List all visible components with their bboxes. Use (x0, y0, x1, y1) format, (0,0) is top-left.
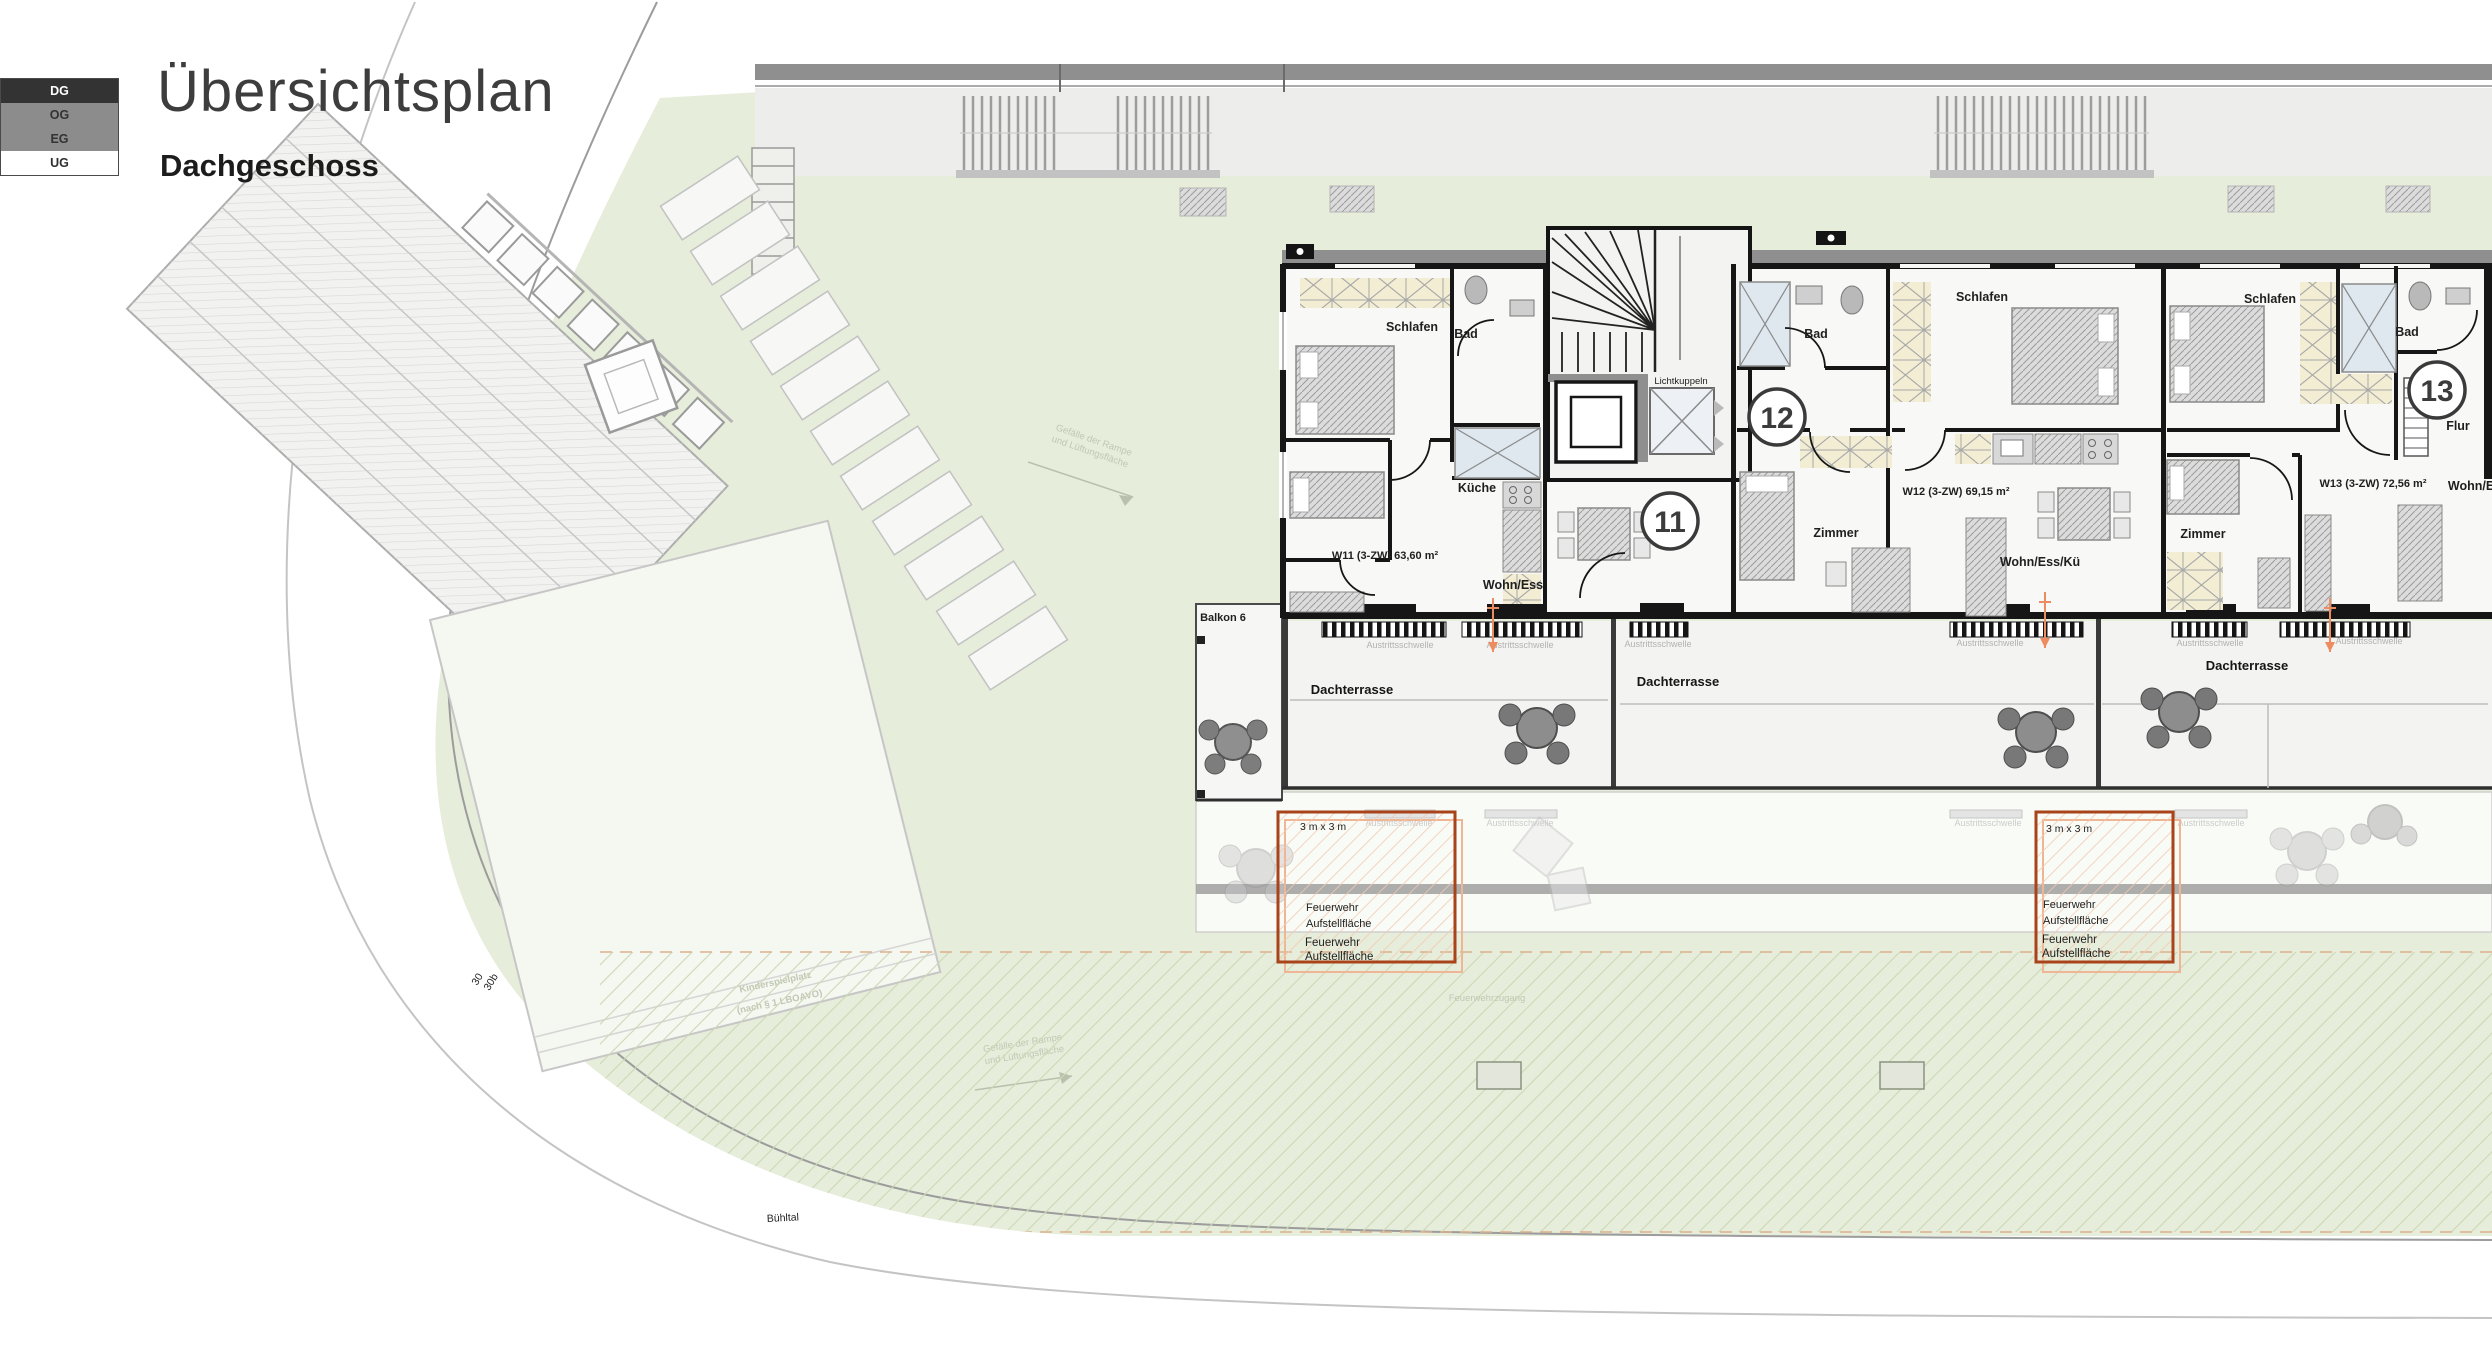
room-label-bath-11: Bad (1454, 327, 1478, 341)
main-building: Balkon 6 (1196, 228, 2492, 972)
bed-w12 (2012, 308, 2118, 404)
threshold-label-lower: Austrittsschwelle (2177, 818, 2244, 828)
threshold-label: Austrittsschwelle (1486, 640, 1553, 650)
wardrobe2-w12 (1800, 436, 1892, 468)
room-label-room-13: Zimmer (2180, 527, 2225, 541)
bed2-w11 (1290, 472, 1384, 518)
vent-icon (1286, 244, 1314, 259)
room-label-living-13: Wohn/Ess (2448, 479, 2492, 493)
wardrobe2-w13 (2167, 552, 2223, 610)
fire-area-pale-line2b: Aufstellfläche (2043, 915, 2108, 927)
bed-w13 (2170, 306, 2264, 402)
apartment-circle-13[interactable]: 13 (2409, 362, 2465, 418)
room-label-living-11: Wohn/Ess (1483, 578, 1543, 592)
fire-area-pale-line1b: Feuerwehr (2043, 899, 2096, 911)
room-label-living-12: Wohn/Ess/Kü (2000, 555, 2080, 569)
apartment-number-12: 12 (1760, 402, 1793, 435)
plan-viewer: Kinderspielplatz (nach § 1 LBOAVO) Gefäl… (0, 0, 2492, 1359)
floor-plan-svg: Kinderspielplatz (nach § 1 LBOAVO) Gefäl… (0, 0, 2492, 1359)
threshold-label: Austrittsschwelle (2176, 638, 2243, 648)
fire-area-pale-line1: Feuerwehr (1306, 902, 1359, 914)
terrace-label-2: Dachterrasse (1637, 674, 1719, 689)
floor-item-eg[interactable]: EG (1, 127, 118, 151)
room-label-sleep-12: Schlafen (1956, 290, 2008, 304)
room-label-kitchen-11: Küche (1458, 481, 1496, 495)
bed-w11 (1296, 346, 1394, 434)
elevator (1548, 374, 1648, 462)
wardrobe-w13 (2300, 282, 2336, 404)
sideboard-w11 (1290, 592, 1364, 612)
room-label-hall-13: Flur (2446, 419, 2470, 433)
apartment-label-12: W12 (3-ZW) 69,15 m² (1903, 486, 2010, 498)
apartment-number-11: 11 (1654, 506, 1686, 539)
house-number-label: 30 30b (469, 965, 501, 995)
wardrobe-w12 (1893, 282, 1931, 402)
apartment-number-13: 13 (2420, 375, 2453, 408)
fire-area-strong-line2b: Aufstellfläche (2042, 948, 2110, 960)
apartment-label-13: W13 (3-ZW) 72,56 m² (2320, 478, 2427, 490)
skylight-label: Lichtkuppeln (1654, 376, 1707, 387)
apartment-circle-12[interactable]: 12 (1749, 389, 1805, 445)
fire-access-strip (600, 952, 2492, 1232)
room-label-sleep-11: Schlafen (1386, 320, 1438, 334)
skylight-box (1650, 388, 1724, 454)
fire-area-size-1: 3 m x 3 m (1300, 821, 1346, 833)
fire-area-strong-line1b: Feuerwehr (2042, 934, 2097, 946)
floor-item-og[interactable]: OG (1, 103, 118, 127)
threshold-label: Austrittsschwelle (2335, 636, 2402, 646)
apartment-circle-11[interactable]: 11 (1642, 493, 1698, 549)
page-title: Übersichtsplan (157, 58, 555, 125)
threshold-label-lower: Austrittsschwelle (1954, 818, 2021, 828)
fire-access-label: Feuerwehrzugang (1449, 993, 1526, 1004)
bed2-w13 (2167, 460, 2239, 514)
floor-item-dg[interactable]: DG (1, 79, 118, 103)
street-name-label: Bühltal (767, 1211, 800, 1225)
house-number-2: 30b (481, 971, 501, 992)
room-label-bath-12: Bad (1804, 327, 1828, 341)
apartment-label-11: W11 (3-ZW) 63,60 m² (1332, 550, 1439, 562)
vent-icon-2 (1816, 231, 1846, 245)
parapet (1282, 250, 2492, 263)
kitchen-w12 (1955, 434, 2118, 464)
wardrobe-w11 (1300, 278, 1450, 308)
fire-area-pale-line2: Aufstellfläche (1306, 918, 1371, 930)
fire-area-strong-line1: Feuerwehr (1305, 937, 1360, 949)
balcony-label: Balkon 6 (1200, 612, 1246, 624)
threshold-label: Austrittsschwelle (1624, 639, 1691, 649)
fire-area-box-2: 3 m x 3 m Feuerwehr Aufstellfläche Feuer… (2036, 812, 2180, 972)
top-wall-band (755, 64, 2492, 178)
room-label-room-12: Zimmer (1813, 526, 1858, 540)
terrace-label-3: Dachterrasse (2206, 658, 2288, 673)
room-label-sleep-13: Schlafen (2244, 292, 2296, 306)
balkon-6: Balkon 6 (1196, 604, 1282, 800)
fire-area-size-2: 3 m x 3 m (2046, 823, 2092, 835)
floor-selector: DG OG EG UG (0, 78, 119, 176)
fire-area-strong-line2: Aufstellfläche (1305, 951, 1373, 963)
threshold-label: Austrittsschwelle (1366, 640, 1433, 650)
fire-area-box-1: 3 m x 3 m Feuerwehr Aufstellfläche Feuer… (1278, 812, 1462, 972)
bed2-w12 (1740, 472, 1794, 580)
room-label-bath-13: Bad (2395, 325, 2419, 339)
threshold-label-lower: Austrittsschwelle (1486, 818, 1553, 828)
stairwell: Lichtkuppeln (1548, 228, 1750, 480)
terrace-label-1: Dachterrasse (1311, 682, 1393, 697)
threshold-label: Austrittsschwelle (1956, 638, 2023, 648)
page-subtitle: Dachgeschoss (160, 148, 379, 184)
floor-item-ug[interactable]: UG (1, 151, 118, 175)
